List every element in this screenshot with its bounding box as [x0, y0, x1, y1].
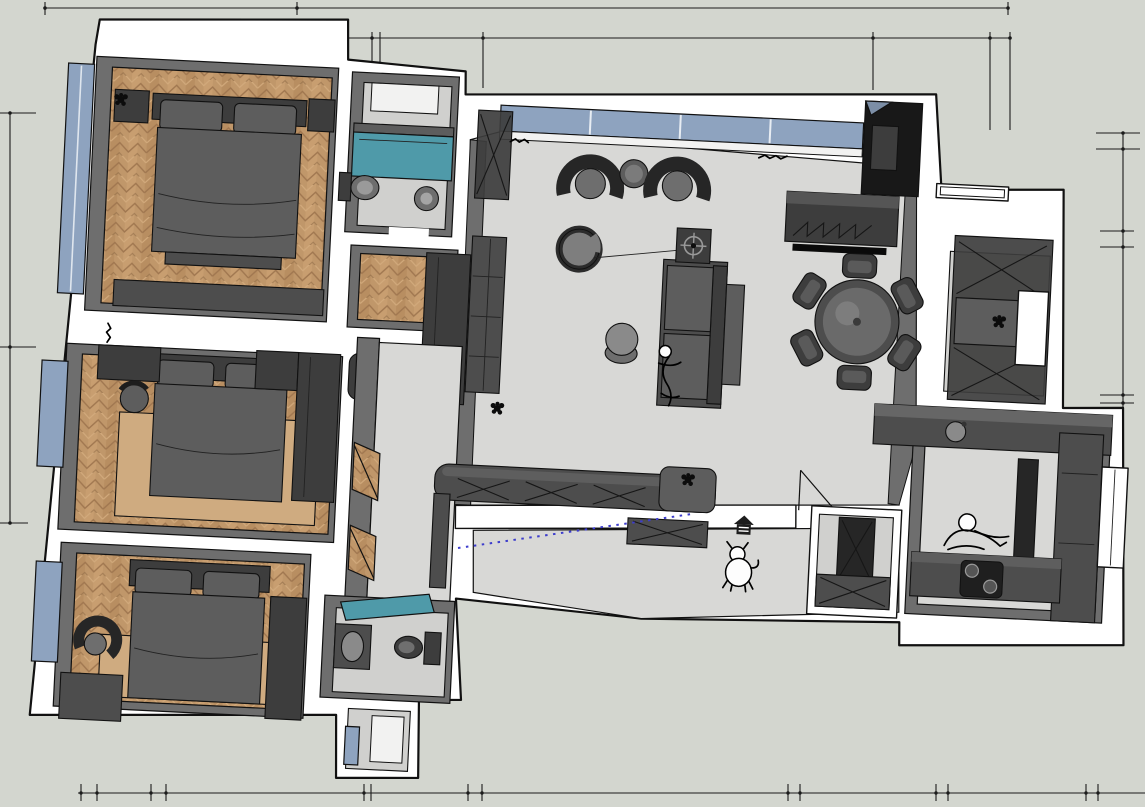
low-cabinet — [59, 672, 123, 721]
bedroom-armchair-seat — [84, 632, 107, 655]
floorplan-canvas — [0, 0, 1145, 807]
side-table-target — [676, 228, 712, 264]
tv-console — [784, 191, 899, 255]
bay-window-opening — [1015, 291, 1049, 366]
bedroom-middle-window — [37, 360, 68, 467]
bed-master — [145, 93, 307, 270]
burner — [965, 564, 979, 578]
nightstand — [308, 99, 336, 132]
bedroom-bottom — [29, 541, 311, 730]
bedroom-master — [57, 55, 339, 322]
bathroom-door-opening — [388, 227, 429, 243]
bed-duvet — [128, 592, 265, 704]
ottoman-stool — [605, 323, 639, 365]
bedroom-middle — [34, 320, 344, 542]
niche-inner-panel — [870, 125, 898, 170]
nightstand — [114, 89, 150, 123]
dining-chair — [837, 365, 872, 391]
kitchen-south-counter — [910, 552, 1062, 603]
terrace-ledge — [936, 184, 1009, 202]
shower-protrusion — [344, 708, 411, 771]
bathroom-bottom — [320, 589, 455, 703]
bed-bottom — [124, 560, 271, 705]
burner — [983, 580, 997, 594]
cooktop — [960, 560, 1004, 598]
bathroom-skylight — [371, 83, 439, 114]
bathroom-top — [336, 71, 459, 243]
bed-duvet — [150, 384, 287, 502]
bay-cabinet-nook — [943, 235, 1053, 404]
swivel-chair — [558, 228, 600, 270]
dining-chair — [842, 253, 877, 279]
floorplan-stage — [0, 0, 1145, 807]
pedestal-basin — [414, 186, 439, 211]
desk — [97, 345, 161, 382]
wardrobe — [292, 353, 341, 503]
washbasin — [333, 624, 371, 670]
wardrobe — [265, 597, 307, 721]
bookcase — [465, 236, 507, 393]
corner-cabinet — [255, 351, 299, 391]
shower-window — [344, 726, 360, 765]
bed-duvet — [152, 127, 302, 258]
bedroom-bottom-window — [31, 561, 62, 662]
utility-closet — [807, 506, 902, 618]
shower-tray — [370, 716, 404, 764]
